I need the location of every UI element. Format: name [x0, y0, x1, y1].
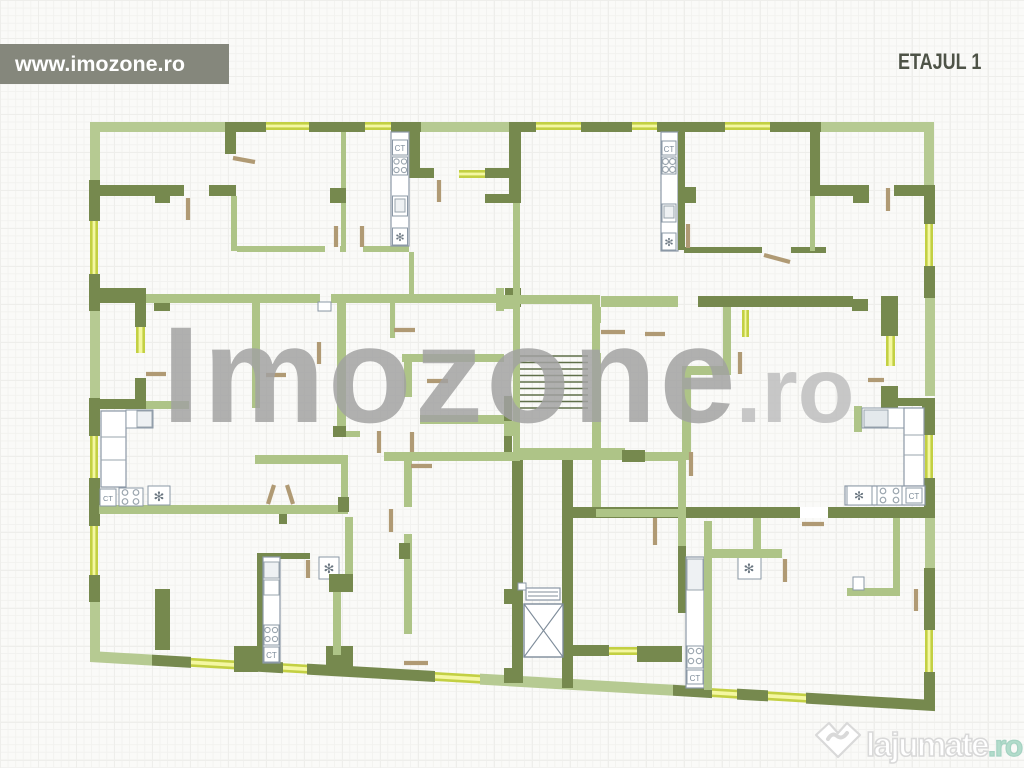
svg-text:CT: CT — [664, 145, 675, 154]
svg-text:✻: ✻ — [154, 489, 165, 504]
svg-text:✻: ✻ — [324, 561, 335, 576]
svg-text:CT: CT — [103, 494, 113, 503]
svg-text:✻: ✻ — [395, 232, 404, 244]
svg-text:CT: CT — [266, 651, 277, 660]
svg-text:✻: ✻ — [854, 489, 864, 503]
svg-text:✻: ✻ — [664, 237, 673, 249]
svg-text:CT: CT — [909, 492, 920, 501]
svg-text:CT: CT — [690, 674, 701, 683]
svg-text:✻: ✻ — [744, 561, 755, 576]
svg-text:CT: CT — [395, 144, 406, 153]
